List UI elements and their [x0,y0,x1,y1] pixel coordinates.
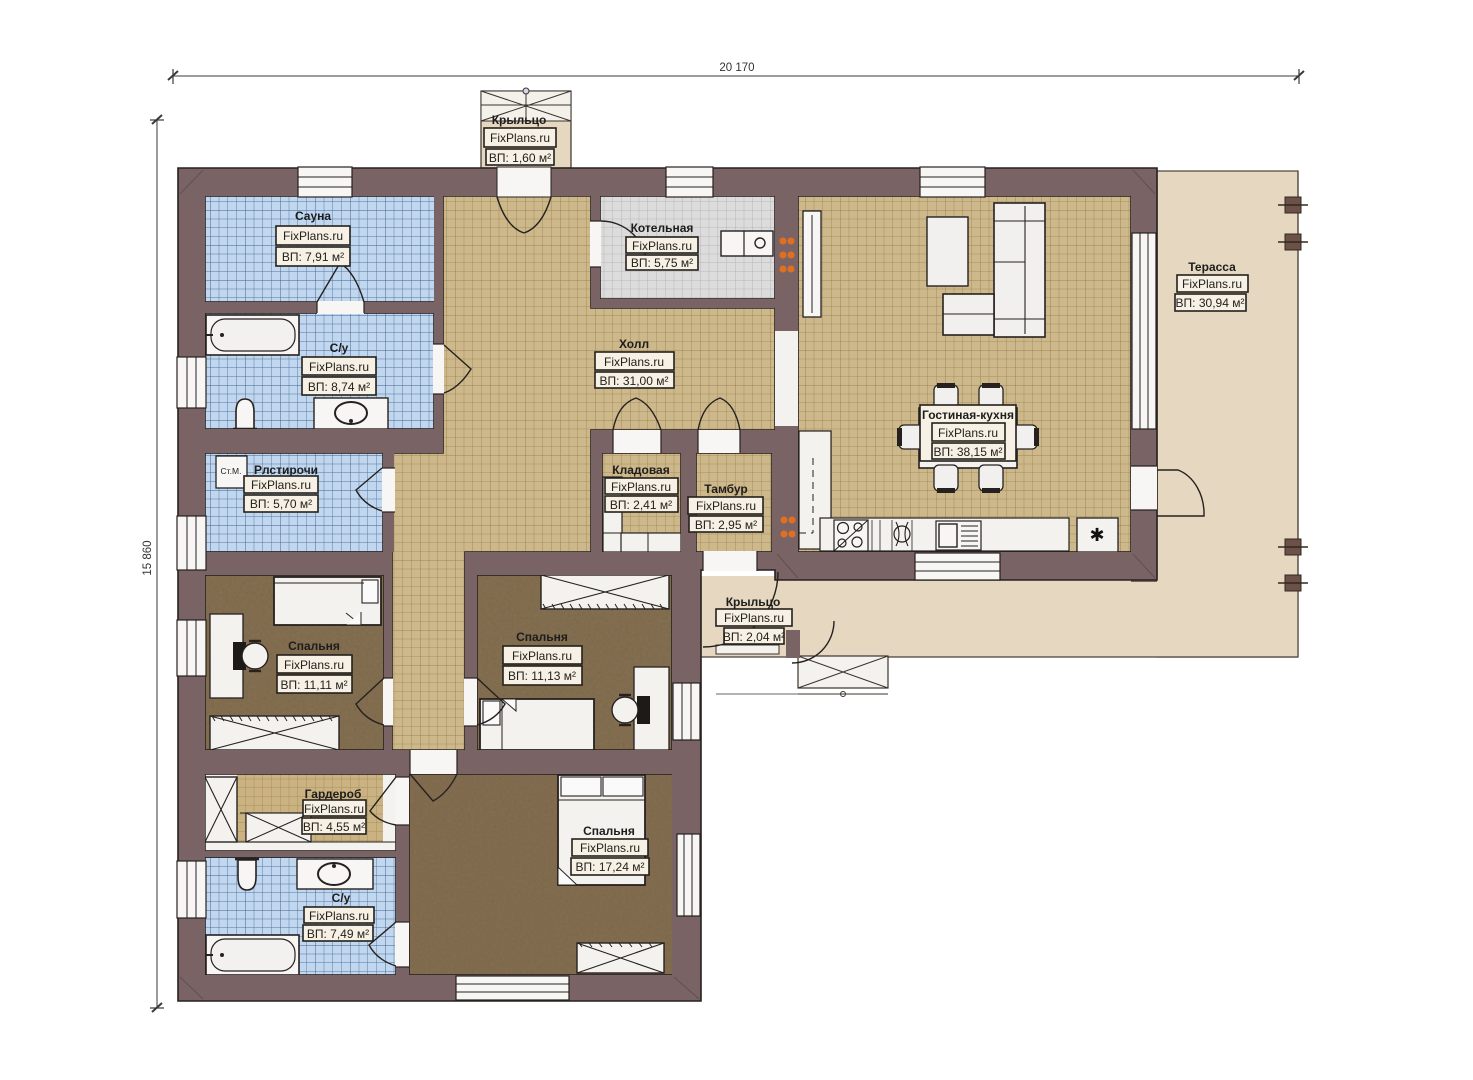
svg-text:FixPlans.ru: FixPlans.ru [580,841,640,855]
svg-text:ВП: 7,49 м²: ВП: 7,49 м² [307,927,369,941]
svg-text:ВП: 11,11 м²: ВП: 11,11 м² [280,678,347,692]
svg-text:Тамбур: Тамбур [704,482,748,496]
svg-text:FixPlans.ru: FixPlans.ru [490,131,550,145]
svg-text:FixPlans.ru: FixPlans.ru [696,499,756,513]
svg-text:ВП: 1,60 м²: ВП: 1,60 м² [489,151,551,165]
svg-text:✱: ✱ [1089,525,1104,545]
svg-text:FixPlans.ru: FixPlans.ru [304,802,364,816]
svg-text:Рлстирочи: Рлстирочи [254,463,318,477]
svg-text:Спальня: Спальня [583,824,635,838]
svg-text:ВП: 5,70 м²: ВП: 5,70 м² [250,497,312,511]
svg-text:ВП: 2,41 м²: ВП: 2,41 м² [610,498,672,512]
svg-text:20 170: 20 170 [719,62,754,74]
svg-text:Сауна: Сауна [295,209,331,223]
svg-text:ВП: 17,24 м²: ВП: 17,24 м² [576,860,645,874]
svg-text:ВП: 11,13 м²: ВП: 11,13 м² [508,669,576,683]
svg-text:Ст.М.: Ст.М. [221,466,242,476]
svg-text:FixPlans.ru: FixPlans.ru [309,360,369,374]
svg-text:ВП: 2,95 м²: ВП: 2,95 м² [695,518,757,532]
svg-text:С/у: С/у [332,891,351,905]
svg-text:FixPlans.ru: FixPlans.ru [251,478,311,492]
svg-text:FixPlans.ru: FixPlans.ru [309,909,369,923]
svg-text:Спальня: Спальня [516,630,568,644]
svg-text:С/у: С/у [330,341,349,355]
svg-text:FixPlans.ru: FixPlans.ru [283,229,343,243]
svg-text:ВП: 30,94 м²: ВП: 30,94 м² [1176,296,1245,310]
svg-text:FixPlans.ru: FixPlans.ru [611,480,671,494]
svg-text:Спальня: Спальня [288,639,340,653]
svg-text:FixPlans.ru: FixPlans.ru [1182,277,1242,291]
svg-text:Холл: Холл [619,337,649,351]
svg-text:Крыльцо: Крыльцо [492,113,547,127]
svg-text:ВП: 38,15 м²: ВП: 38,15 м² [934,445,1003,459]
svg-text:Гостиная-кухня: Гостиная-кухня [922,408,1014,422]
svg-text:Кладовая: Кладовая [612,463,669,477]
svg-text:15 860: 15 860 [142,540,154,575]
svg-text:ВП: 5,75 м²: ВП: 5,75 м² [631,256,693,270]
svg-text:Крыльцо: Крыльцо [726,595,781,609]
svg-text:FixPlans.ru: FixPlans.ru [512,649,572,663]
svg-text:FixPlans.ru: FixPlans.ru [938,426,998,440]
svg-text:ВП: 31,00 м²: ВП: 31,00 м² [600,374,669,388]
svg-text:Терасса: Терасса [1188,260,1236,274]
svg-text:ВП: 8,74 м²: ВП: 8,74 м² [308,380,370,394]
svg-text:FixPlans.ru: FixPlans.ru [604,355,664,369]
svg-text:FixPlans.ru: FixPlans.ru [632,239,692,253]
svg-text:ВП: 2,04 м²: ВП: 2,04 м² [723,630,785,644]
svg-text:FixPlans.ru: FixPlans.ru [284,658,344,672]
svg-text:FixPlans.ru: FixPlans.ru [724,611,784,625]
svg-text:Котельная: Котельная [631,221,694,235]
svg-text:ВП: 7,91 м²: ВП: 7,91 м² [282,250,344,264]
svg-text:Гардероб: Гардероб [305,787,362,801]
svg-text:ВП: 4,55 м²: ВП: 4,55 м² [303,820,365,834]
